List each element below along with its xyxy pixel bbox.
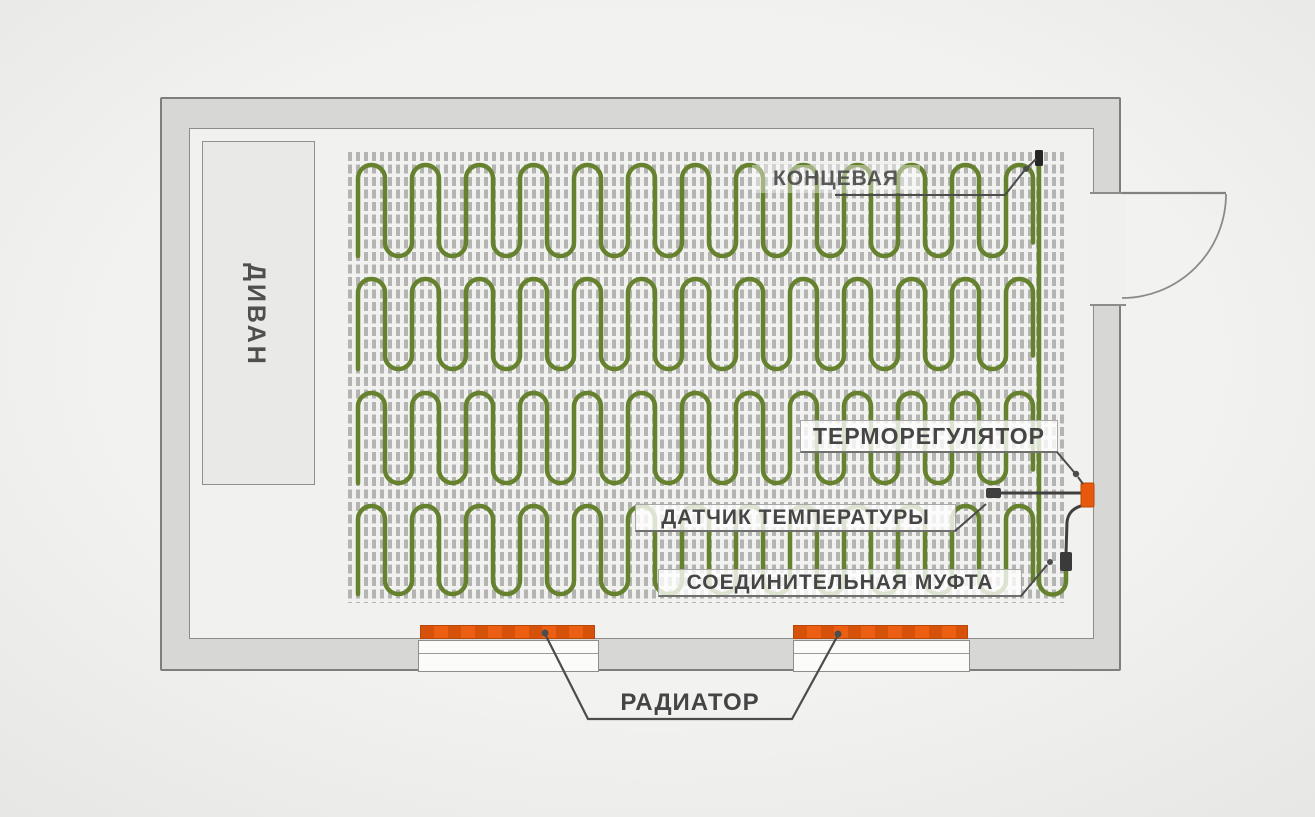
temperature-sensor-leader — [955, 504, 986, 531]
leader-lines-layer — [0, 0, 1315, 817]
thermostat-leader-tip — [1078, 477, 1083, 484]
leader-dot — [835, 631, 842, 638]
radiator-leader — [545, 634, 838, 719]
thermostat-leader — [1057, 452, 1074, 472]
connection-coupling-leader — [1021, 565, 1047, 596]
end-coupling-leader-tip — [1028, 159, 1036, 167]
leader-dot — [542, 630, 549, 637]
leader-dot — [1047, 559, 1053, 565]
floor-plan-diagram: ТЕРМОРЕГУЛЯТОР ДАТЧИК ТЕМПЕРАТУРЫ СОЕДИН… — [0, 0, 1315, 817]
leader-dot — [1073, 471, 1079, 477]
end-coupling-leader — [835, 171, 1024, 195]
